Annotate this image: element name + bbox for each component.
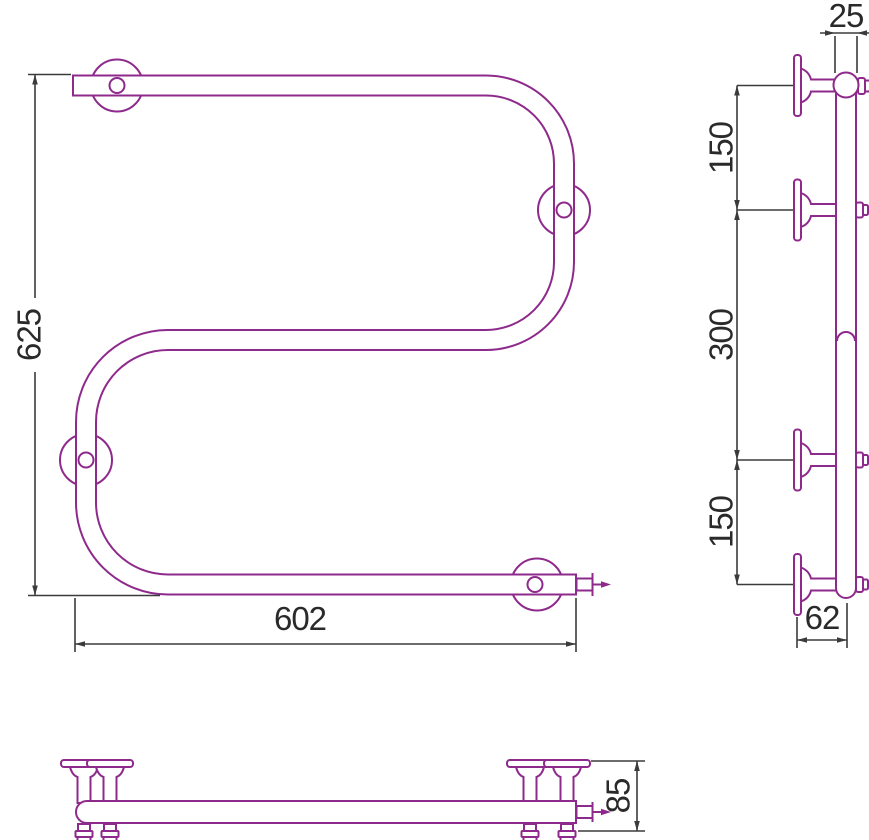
- dim-label-spacing-top: 150: [703, 121, 740, 174]
- dim-label-diameter: 25: [829, 0, 864, 34]
- union-fitting: [856, 453, 868, 468]
- dim-label-bracket-depth: 62: [805, 599, 840, 636]
- side-view: [794, 55, 869, 615]
- dim-plan-depth: 85: [578, 761, 645, 831]
- union-fitting: [856, 203, 868, 218]
- dim-front-width: 602: [75, 598, 576, 652]
- screw-hole: [110, 78, 125, 93]
- technical-drawing: 625 602 25: [0, 0, 869, 840]
- screw-hole: [528, 577, 543, 592]
- union-fitting: [858, 78, 869, 94]
- air-vent-ball: [834, 73, 859, 98]
- union-fitting: [102, 824, 119, 840]
- wall-bracket: [794, 430, 840, 491]
- outlet-connection: [577, 573, 612, 596]
- screw-hole: [79, 453, 94, 468]
- dim-bracket-spacing: 150 300 150: [703, 86, 794, 585]
- dimensions: 625 602 25: [11, 0, 869, 831]
- dim-label-plan-depth: 85: [600, 779, 637, 814]
- front-view: [60, 60, 611, 611]
- dim-pipe-diameter: 25: [820, 0, 869, 73]
- drawing-canvas: 625 602 25: [0, 0, 869, 840]
- union-fitting: [522, 824, 539, 840]
- dim-bracket-depth: 62: [797, 599, 847, 648]
- union-fitting: [559, 824, 576, 840]
- wall-bracket: [87, 760, 133, 803]
- dim-label-spacing-middle: 300: [703, 308, 740, 361]
- union-fitting: [856, 577, 868, 592]
- dim-label-width: 602: [274, 600, 326, 637]
- plan-pipe: [76, 801, 576, 823]
- wall-bracket: [794, 180, 840, 241]
- wall-bracket: [544, 760, 590, 803]
- plan-view: [61, 760, 611, 840]
- screw-hole: [557, 203, 572, 218]
- s-pipe-core: [73, 86, 576, 585]
- dim-label-spacing-bottom: 150: [703, 495, 740, 548]
- flow-arrow-icon: [601, 581, 611, 587]
- dim-label-height: 625: [11, 309, 48, 361]
- union-fitting: [76, 824, 93, 840]
